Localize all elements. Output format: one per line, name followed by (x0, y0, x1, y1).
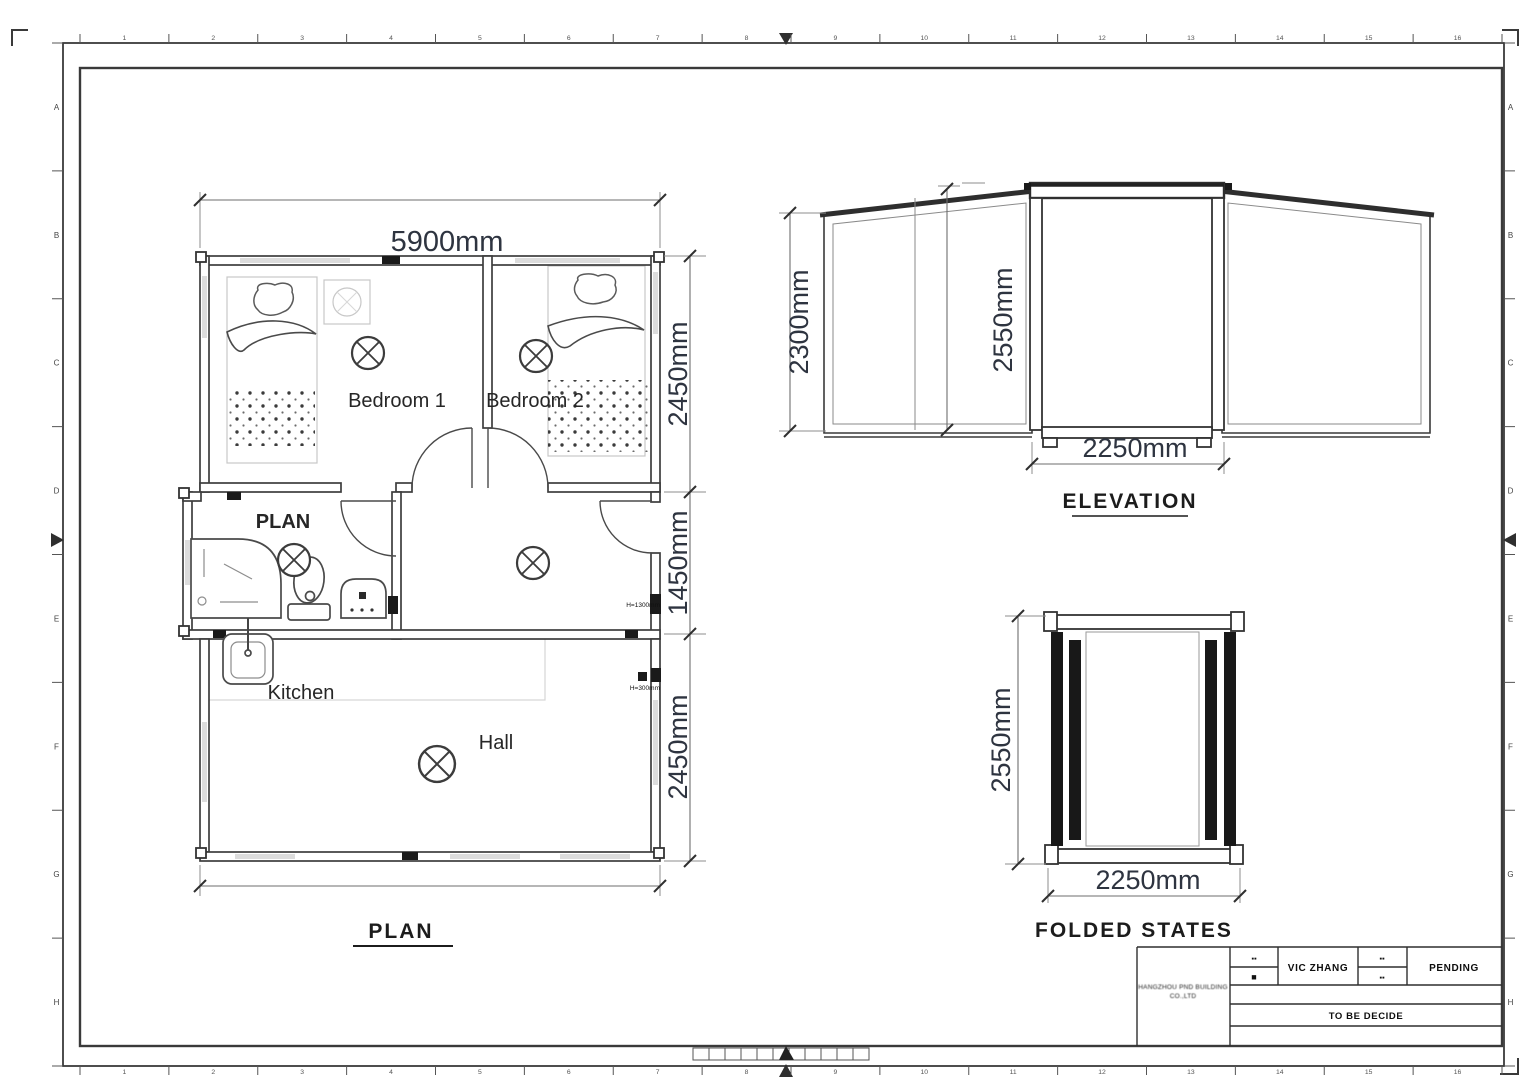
zone-number-top: 11 (1010, 35, 1017, 42)
stamp-glyph-4: ▪▪ (1379, 973, 1385, 982)
zone-number-bottom: 7 (656, 1069, 660, 1076)
company-name-line1: HANGZHOU PND BUILDING (1138, 984, 1227, 991)
dim-plan-row-mid: 1450mm (663, 510, 693, 615)
annotation-window-height2: H=300mm (630, 685, 660, 692)
center-mark-right (1503, 533, 1516, 547)
zone-letter-right: H (1508, 998, 1514, 1007)
shower-icon (191, 539, 281, 618)
blanket-icon (548, 317, 644, 348)
zone-letter-left: A (54, 103, 60, 112)
zone-number-bottom: 3 (300, 1069, 304, 1076)
zone-number-bottom: 14 (1276, 1069, 1284, 1076)
drawing-sheet: { "sheet": { "bg": "#ffffff", "line_colo… (0, 0, 1530, 1080)
cad-sheet: 1122334455667788991010111112121313141415… (0, 0, 1530, 1080)
dim-elevation-side-height: 2300mm (784, 269, 814, 374)
elevation-view: 2300mm 2550mm 2250mm ELEVATION (779, 183, 1434, 516)
zone-number-top: 1 (123, 35, 127, 42)
lamp-bedroom1-icon (352, 337, 384, 369)
zone-letter-right: G (1507, 870, 1513, 879)
corner-mark-top-left (12, 30, 28, 46)
zone-number-bottom: 10 (921, 1069, 929, 1076)
nightstand-icon (324, 280, 370, 324)
zone-number-bottom: 9 (834, 1069, 838, 1076)
stamp-glyph-3: ▪▪ (1379, 954, 1385, 963)
plan-title: PLAN (368, 920, 433, 943)
dim-folded-height: 2550mm (986, 687, 1016, 792)
folded-view: 2550mm 2250mm FOLDED STATES (986, 610, 1246, 942)
folded-title: FOLDED STATES (1035, 919, 1233, 942)
zone-number-top: 15 (1365, 35, 1373, 42)
zone-number-bottom: 6 (567, 1069, 571, 1076)
washbasin-icon (341, 579, 398, 618)
zone-number-top: 2 (211, 35, 215, 42)
zone-letter-right: B (1508, 231, 1513, 240)
zone-number-bottom: 4 (389, 1069, 393, 1076)
zone-number-bottom: 12 (1098, 1069, 1106, 1076)
zone-number-bottom: 11 (1010, 1069, 1017, 1076)
folded-panel (1205, 640, 1217, 840)
zone-letter-left: C (54, 359, 60, 368)
zone-number-top: 6 (567, 35, 571, 42)
kitchen-sink-icon (223, 618, 273, 684)
stamp-glyph-2: ■ (1251, 972, 1256, 982)
bed1-icon (227, 277, 317, 463)
scale-bar (693, 1046, 869, 1060)
label-kitchen: Kitchen (268, 682, 335, 704)
zone-number-bottom: 13 (1187, 1069, 1195, 1076)
zone-number-bottom: 15 (1365, 1069, 1373, 1076)
title-block: HANGZHOU PND BUILDING CO.,LTD ▪▪ ■ ▪▪ ▪▪… (1137, 947, 1502, 1046)
stamp-glyph-1: ▪▪ (1251, 954, 1257, 963)
zone-number-bottom: 16 (1454, 1069, 1462, 1076)
zone-letter-right: F (1508, 742, 1513, 751)
zone-number-top: 7 (656, 35, 660, 42)
elevation-title: ELEVATION (1062, 490, 1197, 513)
zone-letter-left: E (54, 614, 59, 623)
dim-elevation-center-width: 2250mm (1082, 433, 1187, 463)
dim-plan-row-bottom: 2450mm (663, 694, 693, 799)
status-text: PENDING (1429, 963, 1479, 974)
mat-dots (229, 388, 315, 446)
folded-panel (1224, 632, 1236, 846)
zone-number-top: 14 (1276, 35, 1284, 42)
dim-folded-width: 2250mm (1095, 865, 1200, 895)
zone-number-bottom: 8 (745, 1069, 749, 1076)
zone-letter-left: B (54, 231, 59, 240)
zone-letter-left: D (54, 487, 60, 496)
drafter-name: VIC ZHANG (1288, 963, 1348, 974)
zone-letter-left: H (54, 998, 60, 1007)
lamp-bedroom2-icon (520, 340, 552, 372)
blanket-icon (227, 321, 316, 351)
bed2-icon (548, 266, 648, 456)
lamp-hall-icon (419, 746, 455, 782)
company-cell: HANGZHOU PND BUILDING CO.,LTD (1138, 984, 1227, 1000)
zone-number-bottom: 2 (211, 1069, 215, 1076)
label-bedroom1: Bedroom 1 (348, 390, 446, 412)
zone-letter-left: G (53, 870, 59, 879)
zone-number-top: 16 (1454, 35, 1462, 42)
annotation-window-height1: H=1300mm (626, 602, 660, 609)
dim-plan-row-top: 2450mm (663, 321, 693, 426)
zone-letter-right: A (1508, 103, 1514, 112)
center-mark-left (51, 533, 64, 547)
pillow-icon (254, 283, 293, 315)
zone-number-bottom: 5 (478, 1069, 482, 1076)
zone-letter-right: C (1508, 359, 1514, 368)
lamp-corridor-icon (517, 547, 549, 579)
zone-number-top: 10 (921, 35, 929, 42)
pillow-icon (574, 274, 616, 304)
label-bath: PLAN (256, 511, 310, 533)
zone-letter-right: E (1508, 614, 1513, 623)
zone-letter-left: F (54, 742, 59, 751)
floor-plan: Bedroom 1 Bedroom 2 PLAN Kitchen Hall H=… (179, 192, 706, 946)
label-bedroom2: Bedroom 2 (486, 390, 584, 412)
zone-letter-right: D (1508, 487, 1514, 496)
folded-panel (1051, 632, 1063, 846)
lamp-bath-icon (278, 544, 310, 576)
dim-elevation-center-height: 2550mm (988, 267, 1018, 372)
note-text: TO BE DECIDE (1329, 1011, 1404, 1022)
zone-number-top: 13 (1187, 35, 1195, 42)
folded-panel (1069, 640, 1081, 840)
company-name-line2: CO.,LTD (1170, 993, 1197, 1000)
zone-number-top: 3 (300, 35, 304, 42)
zone-number-top: 5 (478, 35, 482, 42)
zone-number-top: 12 (1098, 35, 1106, 42)
zone-number-bottom: 1 (123, 1069, 127, 1076)
dim-plan-width: 5900mm (391, 226, 504, 258)
zone-number-top: 4 (389, 35, 393, 42)
zone-number-top: 8 (745, 35, 749, 42)
zone-number-top: 9 (834, 35, 838, 42)
label-hall: Hall (479, 732, 513, 754)
